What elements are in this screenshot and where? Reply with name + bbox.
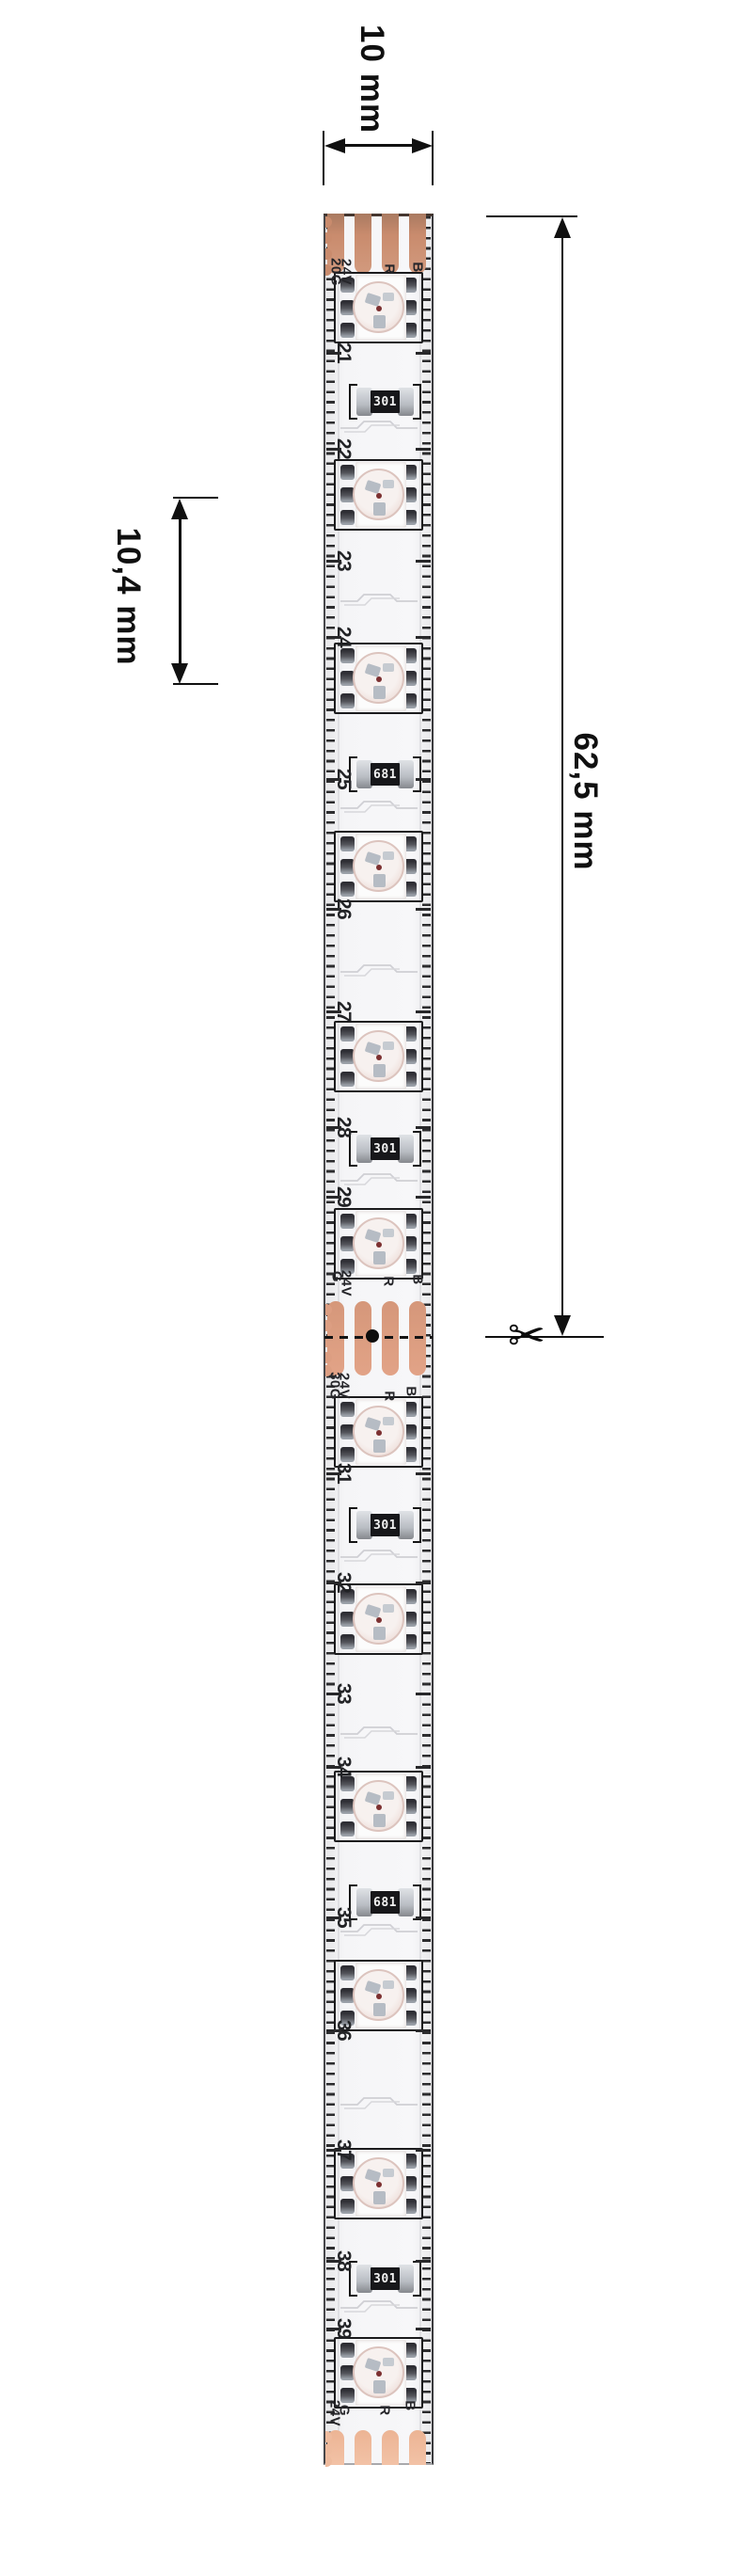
segment-dimension-label: 62,5 mm [566,732,604,870]
led-strip-dimension-diagram: 3016813013016813012122232425262728293132… [0,0,742,2576]
dimension-arrow-shaft [337,144,420,147]
pitch-dimension-label: 10,4 mm [109,527,147,665]
pcb-trace-line [338,216,339,2463]
arrowhead-up-icon [554,217,571,238]
ruler-ticks-right [422,216,431,2463]
width-dimension-label: 10 mm [353,24,390,134]
led-strip-photo [324,214,434,2465]
arrowhead-down-icon [171,663,188,684]
scissors-icon: ✂ [508,1313,545,1359]
ruler-ticks-left [326,216,335,2463]
dimension-arrow-shaft [561,220,563,1321]
dimension-arrow-shaft [179,516,182,668]
arrowhead-down-icon [554,1315,571,1336]
pcb-trace-line [419,216,421,2463]
arrowhead-left-icon [324,138,345,153]
arrowhead-up-icon [171,499,188,519]
arrowhead-right-icon [412,138,433,153]
